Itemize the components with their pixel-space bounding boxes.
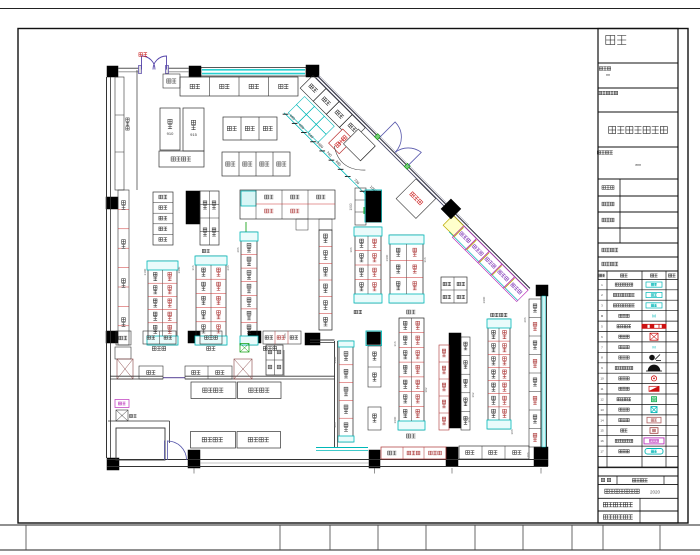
svg-text:14: 14 (600, 418, 604, 422)
svg-text:316: 316 (393, 341, 397, 346)
svg-text:915: 915 (190, 132, 197, 137)
svg-text:316: 316 (423, 257, 427, 262)
svg-text:2900: 2900 (177, 266, 181, 273)
svg-text:316: 316 (191, 265, 195, 270)
svg-text:2900: 2900 (385, 254, 389, 261)
svg-text:910: 910 (167, 131, 174, 136)
svg-text:306: 306 (510, 429, 514, 434)
svg-text:206: 206 (523, 317, 527, 322)
svg-text:2020: 2020 (650, 490, 661, 495)
svg-text:***: *** (635, 164, 641, 170)
svg-text:17: 17 (600, 450, 604, 454)
svg-text:1900: 1900 (349, 203, 353, 210)
svg-text:206: 206 (526, 452, 530, 457)
svg-text:362: 362 (471, 392, 475, 397)
svg-text:316: 316 (467, 417, 471, 422)
svg-text:302: 302 (424, 387, 428, 392)
svg-text:M: M (652, 313, 656, 318)
svg-text:16: 16 (600, 439, 604, 443)
svg-text:**: ** (606, 74, 610, 80)
svg-text:206: 206 (236, 247, 240, 252)
svg-text:2900: 2900 (482, 296, 486, 303)
svg-text:12: 12 (600, 397, 604, 401)
svg-text:206: 206 (333, 422, 337, 427)
svg-text:306: 306 (349, 247, 353, 252)
svg-text:10: 10 (600, 377, 604, 381)
svg-text:13: 13 (600, 408, 604, 412)
svg-text:M: M (652, 345, 655, 350)
svg-text:236: 236 (226, 265, 230, 270)
svg-text:2900: 2900 (393, 416, 397, 423)
svg-text:11: 11 (600, 387, 603, 391)
svg-text:206: 206 (283, 333, 287, 338)
svg-text:2100: 2100 (143, 268, 147, 275)
svg-text:15: 15 (600, 429, 604, 433)
svg-text:2900: 2900 (333, 356, 337, 363)
